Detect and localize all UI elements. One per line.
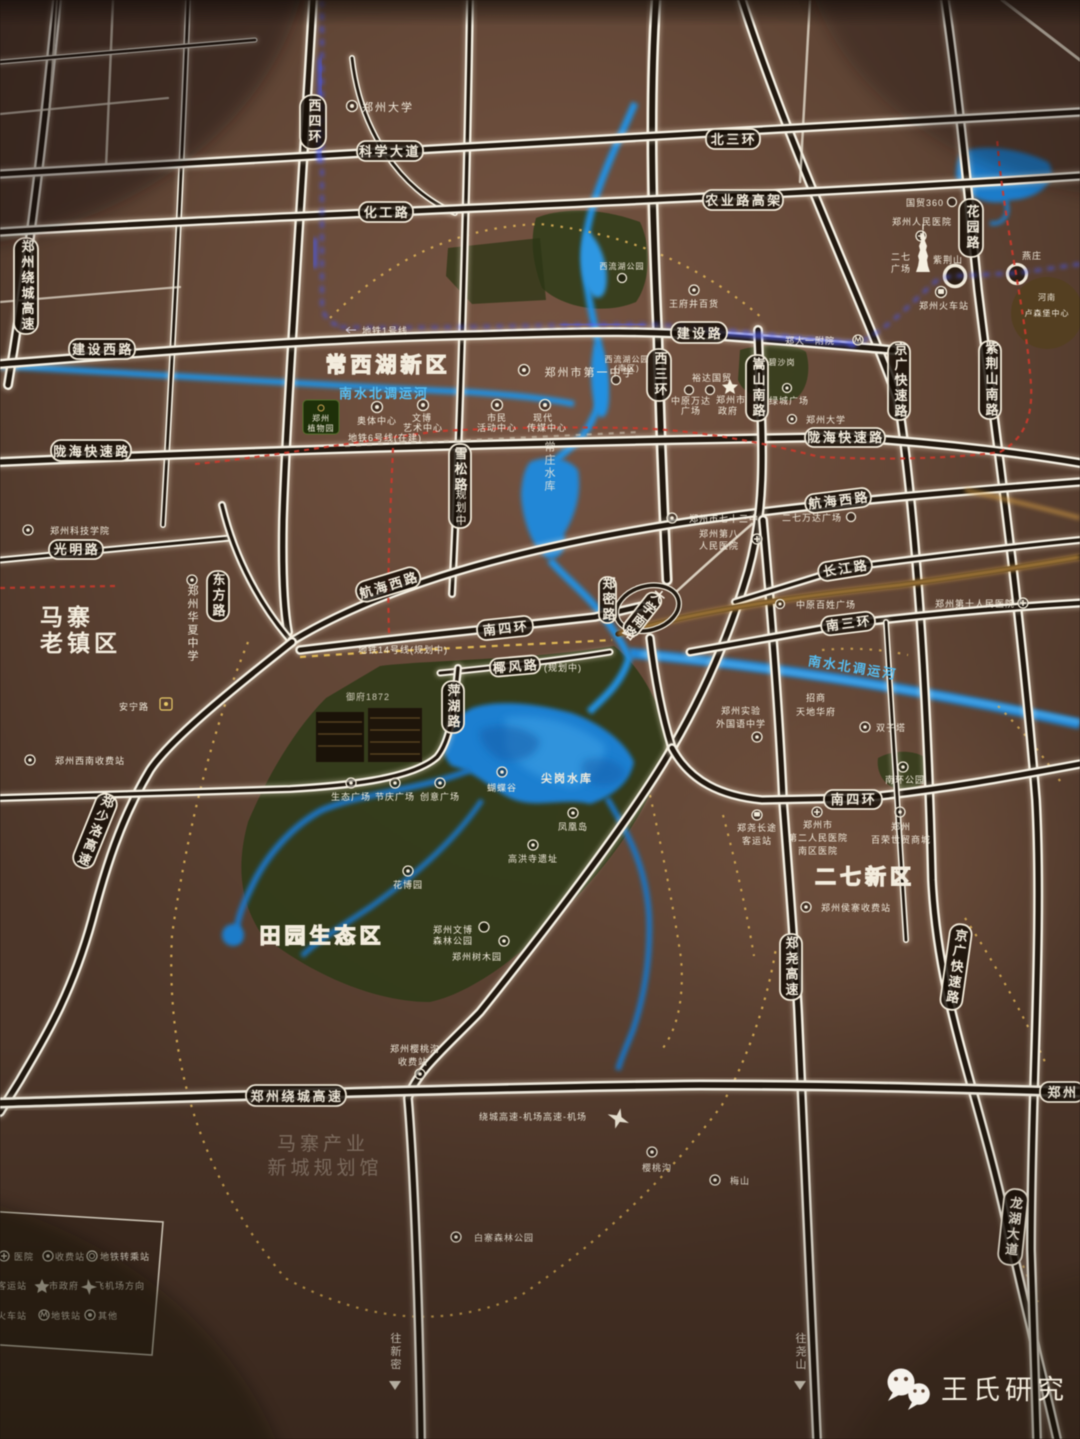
svg-text:花园路: 花园路 xyxy=(965,204,980,251)
svg-text:陇海快速路: 陇海快速路 xyxy=(807,430,885,445)
svg-text:郑州实验: 郑州实验 xyxy=(721,705,761,716)
svg-text:王氏研究: 王氏研究 xyxy=(941,1375,1069,1405)
svg-text:郑州树木园: 郑州树木园 xyxy=(452,951,502,962)
svg-text:中原百姓广场: 中原百姓广场 xyxy=(796,599,856,610)
svg-text:郑州大学: 郑州大学 xyxy=(362,100,414,114)
svg-text:地铁1号线: 地铁1号线 xyxy=(362,325,408,336)
svg-text:百荣世贸商城: 百荣世贸商城 xyxy=(871,834,931,845)
svg-text:双子塔: 双子塔 xyxy=(876,722,906,733)
svg-text:凤凰岛: 凤凰岛 xyxy=(558,821,588,832)
svg-text:郑州: 郑州 xyxy=(312,413,330,423)
svg-text:西流湖公园: 西流湖公园 xyxy=(600,261,645,271)
svg-text:紫荆山南路: 紫荆山南路 xyxy=(984,341,999,419)
svg-text:绿城广场: 绿城广场 xyxy=(769,395,809,406)
svg-text:郑州市: 郑州市 xyxy=(716,394,746,405)
svg-text:郑州科技学院: 郑州科技学院 xyxy=(50,525,110,536)
svg-text:蝴蝶谷: 蝴蝶谷 xyxy=(487,782,517,793)
svg-text:招商: 招商 xyxy=(806,692,826,703)
svg-text:王府井百货: 王府井百货 xyxy=(669,298,719,309)
svg-text:西三环: 西三环 xyxy=(653,352,668,399)
svg-text:高洪寺遗址: 高洪寺遗址 xyxy=(508,853,558,864)
svg-text:郑州第十人民医院: 郑州第十人民医院 xyxy=(935,598,1015,609)
svg-text:郑州第八: 郑州第八 xyxy=(699,528,739,539)
svg-text:卢森堡中心: 卢森堡中心 xyxy=(1025,308,1070,318)
svg-text:郑州西南收费站: 郑州西南收费站 xyxy=(55,755,125,766)
svg-text:西流湖公园: 西流湖公园 xyxy=(605,354,650,364)
svg-text:地铁14号线(规划中): 地铁14号线(规划中) xyxy=(358,644,448,655)
svg-text:(规划中): (规划中) xyxy=(544,662,582,673)
svg-text:科学大道: 科学大道 xyxy=(359,144,421,159)
svg-text:政府: 政府 xyxy=(718,405,738,416)
svg-text:建设西路: 建设西路 xyxy=(72,342,134,357)
svg-text:二七新区: 二七新区 xyxy=(815,865,915,889)
svg-text:人民医院: 人民医院 xyxy=(699,540,739,551)
svg-text:现代: 现代 xyxy=(533,413,553,423)
svg-text:郑州市七十三中: 郑州市七十三中 xyxy=(689,513,759,524)
svg-text:马寨: 马寨 xyxy=(40,604,94,630)
svg-text:郑大一附院: 郑大一附院 xyxy=(785,335,835,346)
svg-text:安宁路: 安宁路 xyxy=(119,701,149,712)
svg-text:二七万达广场: 二七万达广场 xyxy=(782,512,842,523)
svg-text:国贸360: 国贸360 xyxy=(906,197,944,208)
svg-text:田园生态区: 田园生态区 xyxy=(260,924,385,948)
svg-text:地铁6号线(在建): 地铁6号线(在建) xyxy=(348,432,422,443)
svg-text:农业路高架: 农业路高架 xyxy=(704,193,783,208)
svg-text:雪松路: 雪松路 xyxy=(453,446,468,493)
svg-text:传媒中心: 传媒中心 xyxy=(527,422,567,433)
svg-text:广场: 广场 xyxy=(891,263,911,274)
svg-text:奥体中心: 奥体中心 xyxy=(357,415,397,426)
svg-text:节庆广场: 节庆广场 xyxy=(375,791,415,802)
svg-text:南区医院: 南区医院 xyxy=(798,845,838,856)
svg-text:创意广场: 创意广场 xyxy=(420,791,460,802)
svg-text:常西湖新区: 常西湖新区 xyxy=(326,353,451,377)
svg-text:文博: 文博 xyxy=(412,412,432,423)
svg-text:西四环: 西四环 xyxy=(307,99,322,146)
svg-text:燕庄: 燕庄 xyxy=(1022,250,1042,261)
svg-text:尖岗水库: 尖岗水库 xyxy=(541,771,593,785)
svg-text:老镇区: 老镇区 xyxy=(39,630,121,656)
svg-text:郑州人民医院: 郑州人民医院 xyxy=(892,216,952,227)
svg-text:裕达国贸: 裕达国贸 xyxy=(692,372,732,383)
svg-text:郑州侯寨收费站: 郑州侯寨收费站 xyxy=(821,902,891,913)
svg-text:南环公园: 南环公园 xyxy=(885,774,925,785)
svg-text:郑尧长途: 郑尧长途 xyxy=(737,822,777,833)
svg-text:花博园: 花博园 xyxy=(393,879,423,890)
svg-text:御府1872: 御府1872 xyxy=(346,691,390,702)
svg-text:市民: 市民 xyxy=(487,412,507,423)
svg-text:郑州火车站: 郑州火车站 xyxy=(919,300,969,311)
svg-text:艺术中心: 艺术中心 xyxy=(403,422,443,433)
svg-text:广场: 广场 xyxy=(681,405,701,416)
svg-text:郑尧高速: 郑尧高速 xyxy=(784,935,799,998)
svg-text:碧沙岗: 碧沙岗 xyxy=(769,357,796,367)
svg-text:萍湖路: 萍湖路 xyxy=(446,683,461,730)
svg-text:南水北调运河: 南水北调运河 xyxy=(339,386,429,401)
svg-text:嵩山南路: 嵩山南路 xyxy=(751,356,766,419)
svg-text:河南: 河南 xyxy=(1038,292,1056,302)
svg-text:北三环: 北三环 xyxy=(711,132,758,147)
svg-text:植物园: 植物园 xyxy=(308,423,335,433)
svg-text:常庄水库: 常庄水库 xyxy=(543,441,556,493)
svg-text:紫荆山: 紫荆山 xyxy=(933,254,963,265)
svg-text:天地华府: 天地华府 xyxy=(796,706,836,717)
svg-text:郑州市: 郑州市 xyxy=(803,819,833,830)
svg-text:郑州大学: 郑州大学 xyxy=(806,414,846,425)
svg-text:森林公园: 森林公园 xyxy=(433,935,473,946)
svg-text:郑州文博: 郑州文博 xyxy=(433,924,473,935)
svg-text:京广快速路: 京广快速路 xyxy=(893,342,908,420)
svg-text:南四环: 南四环 xyxy=(831,792,878,807)
svg-text:中原万达: 中原万达 xyxy=(671,395,711,406)
svg-text:规划中: 规划中 xyxy=(454,487,467,527)
svg-text:郑密路: 郑密路 xyxy=(601,576,617,623)
svg-text:第二人民医院: 第二人民医院 xyxy=(788,832,848,843)
svg-text:生态广场: 生态广场 xyxy=(331,791,371,802)
svg-text:郑州: 郑州 xyxy=(891,821,911,832)
svg-text:郑州绕城高速: 郑州绕城高速 xyxy=(20,239,36,333)
svg-text:建设路: 建设路 xyxy=(677,326,724,341)
svg-text:二七: 二七 xyxy=(891,252,911,262)
svg-text:东方路: 东方路 xyxy=(211,572,226,619)
svg-text:光明路: 光明路 xyxy=(53,542,101,557)
svg-text:客运站: 客运站 xyxy=(742,835,772,846)
svg-text:(南区): (南区) xyxy=(614,363,639,373)
svg-text:陇海快速路: 陇海快速路 xyxy=(53,444,131,459)
svg-text:郑州华夏中学: 郑州华夏中学 xyxy=(186,584,199,663)
svg-text:外国语中学: 外国语中学 xyxy=(716,718,766,729)
svg-text:活动中心: 活动中心 xyxy=(477,422,517,433)
svg-text:化工路: 化工路 xyxy=(364,205,411,220)
